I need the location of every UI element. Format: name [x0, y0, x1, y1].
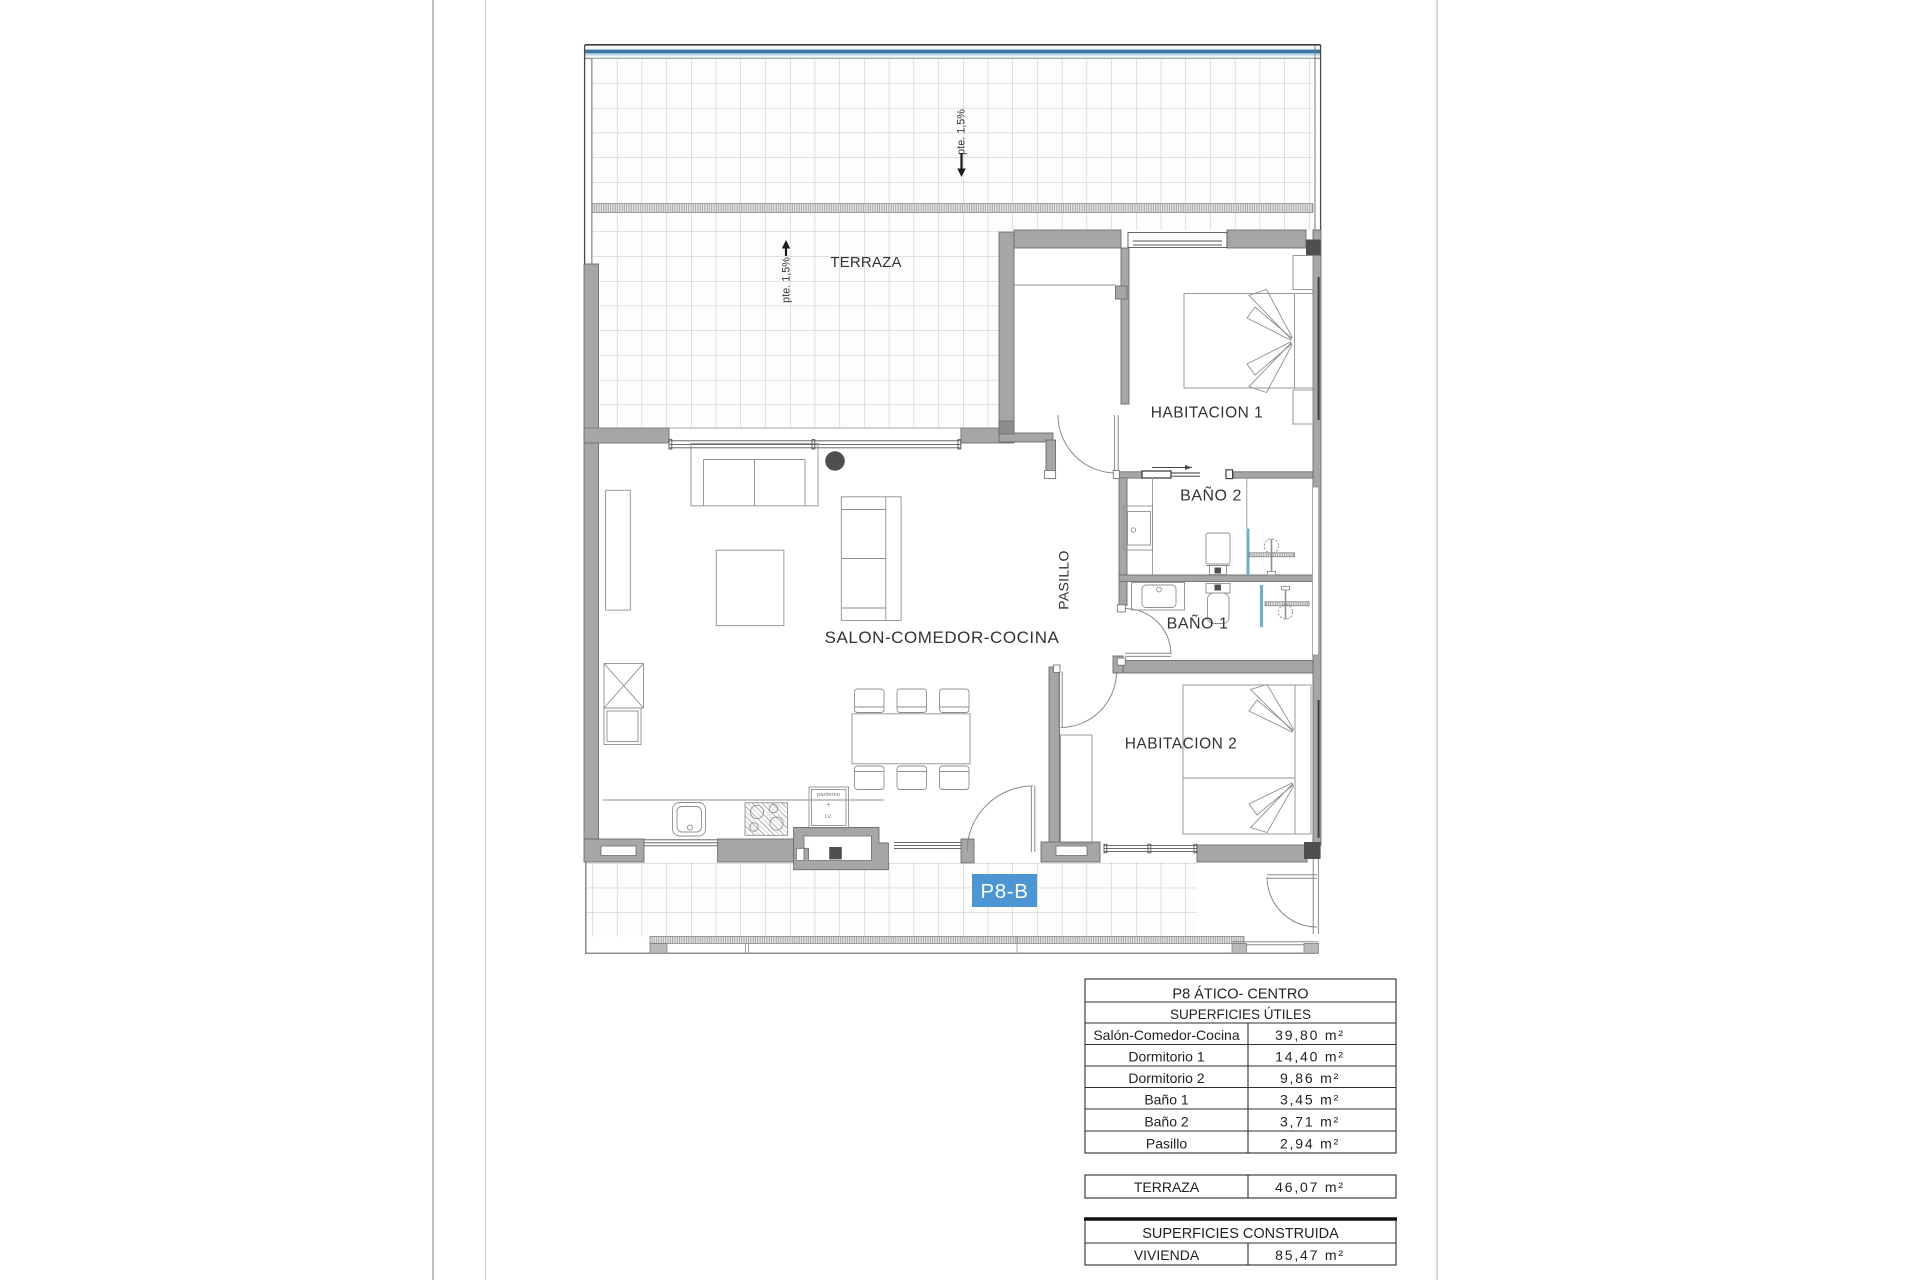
svg-text:BAÑO 2: BAÑO 2	[1180, 485, 1242, 505]
svg-text:SALON-COMEDOR-COCINA: SALON-COMEDOR-COCINA	[825, 628, 1060, 647]
svg-text:pardemo: pardemo	[817, 792, 840, 798]
svg-text:39,80 m²: 39,80 m²	[1275, 1027, 1345, 1043]
svg-text:SUPERFICIES CONSTRUIDA: SUPERFICIES CONSTRUIDA	[1142, 1226, 1339, 1242]
svg-text:TERRAZA: TERRAZA	[830, 254, 901, 271]
svg-text:46,07 m²: 46,07 m²	[1275, 1179, 1345, 1195]
svg-text:Baño 2: Baño 2	[1144, 1114, 1189, 1130]
svg-text:LV.: LV.	[825, 814, 833, 820]
svg-text:PASILLO: PASILLO	[1056, 550, 1072, 609]
svg-text:TERRAZA: TERRAZA	[1134, 1179, 1200, 1195]
svg-text:HABITACION 1: HABITACION 1	[1151, 405, 1264, 422]
svg-text:+: +	[826, 802, 830, 809]
svg-text:2,94 m²: 2,94 m²	[1280, 1136, 1340, 1152]
svg-text:pte. 1,5%: pte. 1,5%	[781, 257, 793, 303]
svg-text:14,40 m²: 14,40 m²	[1275, 1049, 1345, 1065]
svg-text:BAÑO 1: BAÑO 1	[1167, 613, 1229, 633]
svg-text:85,47 m²: 85,47 m²	[1275, 1247, 1345, 1263]
svg-text:3,45 m²: 3,45 m²	[1280, 1092, 1340, 1108]
svg-text:Dormitorio 1: Dormitorio 1	[1128, 1049, 1204, 1065]
svg-text:Baño 1: Baño 1	[1144, 1092, 1189, 1108]
svg-text:Dormitorio 2: Dormitorio 2	[1128, 1070, 1204, 1086]
svg-text:P8-B: P8-B	[981, 880, 1029, 903]
svg-text:Pasillo: Pasillo	[1146, 1136, 1187, 1152]
svg-text:P8 ÁTICO- CENTRO: P8 ÁTICO- CENTRO	[1172, 986, 1308, 1003]
svg-text:pte. 1,5%: pte. 1,5%	[956, 109, 968, 155]
svg-text:SUPERFICIES ÚTILES: SUPERFICIES ÚTILES	[1170, 1007, 1311, 1022]
svg-text:9,86 m²: 9,86 m²	[1280, 1070, 1340, 1086]
svg-text:Salón-Comedor-Cocina: Salón-Comedor-Cocina	[1093, 1027, 1240, 1043]
svg-text:HABITACION 2: HABITACION 2	[1125, 736, 1238, 753]
svg-text:3,71 m²: 3,71 m²	[1280, 1114, 1340, 1130]
svg-text:VIVIENDA: VIVIENDA	[1134, 1247, 1200, 1263]
